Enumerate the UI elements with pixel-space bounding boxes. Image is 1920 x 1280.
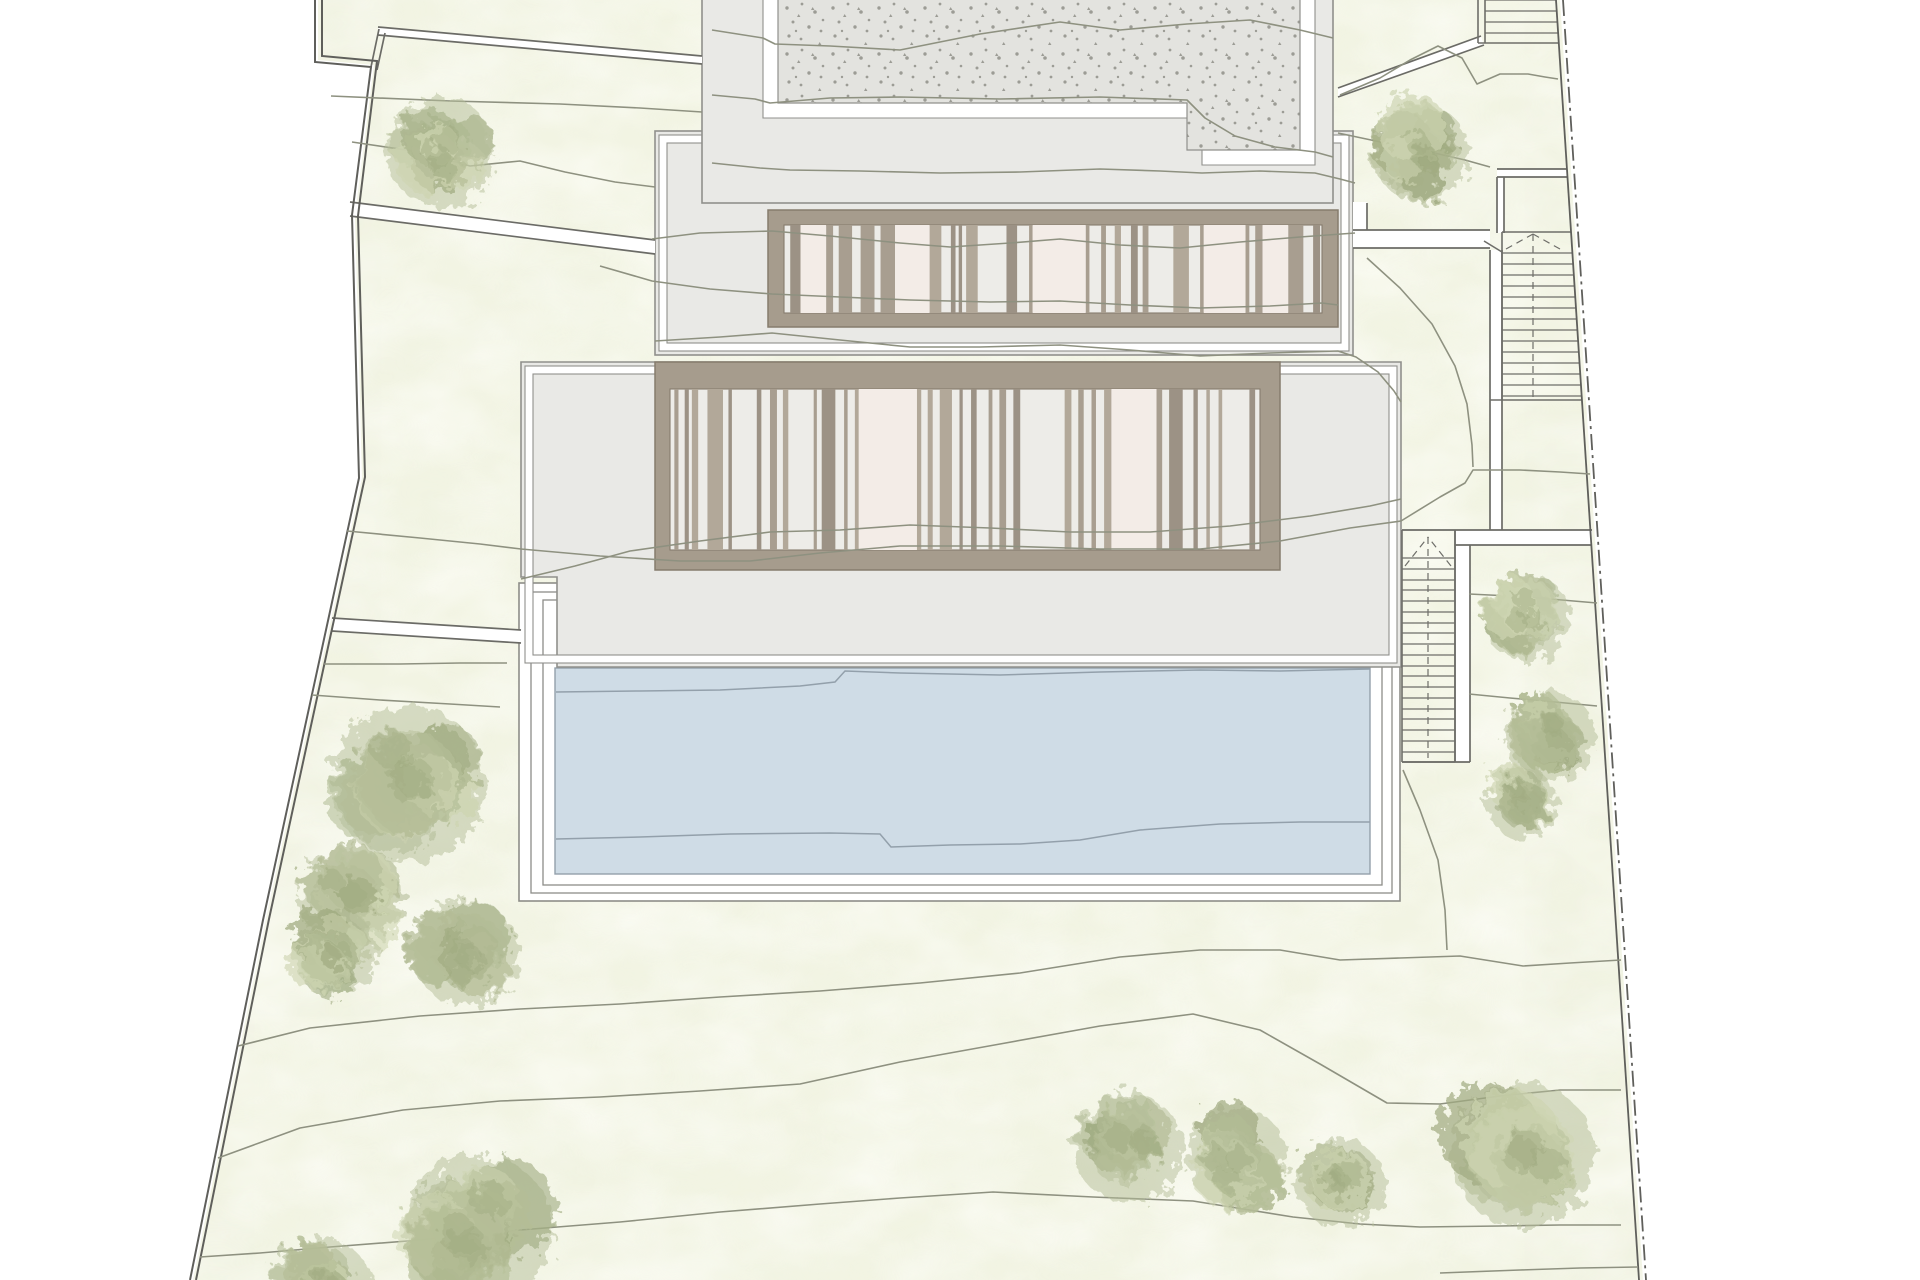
pergola-slat [1101,225,1106,313]
pergola-slat [971,389,977,550]
pergola-slat [1249,389,1255,550]
pergola-slat [1013,389,1020,550]
pergola-slat [1078,389,1083,550]
pergola-slat [1131,225,1138,313]
pergola-slat [707,389,723,550]
retaining-wall-band [1353,202,1367,230]
pergola-slat [1246,225,1250,313]
pergola-slat [814,389,817,550]
retaining-wall-band [1490,250,1502,530]
pergola-slat [1006,225,1017,313]
pergola-slat [1255,225,1262,313]
pergola-slat [1206,389,1209,550]
pergola-slat [674,389,678,550]
pergola-slat [1143,225,1149,313]
pergola-slat [959,389,962,550]
pool-water [555,668,1370,874]
site-plan-drawing [0,0,1920,1280]
pergola-slat [790,225,800,313]
pergola-slat [966,225,978,313]
pergola-slat [1157,389,1163,550]
retaining-wall-band [1497,169,1504,233]
pergola-slat [757,389,762,550]
pergola-slat [822,389,836,550]
pergola-slat [989,389,993,550]
pergola-slat [1173,225,1189,313]
pergola-slat [999,389,1006,550]
site-plan-canvas [0,0,1920,1280]
tree-canopy [1296,1139,1384,1227]
pergola-slat [844,389,848,550]
pergola-slat [855,389,859,550]
pergola-slat [783,389,788,550]
pergola-slat [1065,389,1072,550]
retaining-wall-band [1497,169,1567,177]
pergola-slat [1115,225,1121,313]
pergola-slat [728,389,731,550]
tree-canopy [386,97,495,206]
pergola-slat [685,389,689,550]
pergola-slat [1104,389,1111,550]
pergola-slat [1313,225,1320,313]
pergola-slat [1200,225,1204,313]
pergola-slat [692,389,698,550]
pergola-slat [770,389,777,550]
pergola-slat [959,225,962,313]
pergola-slat [1193,389,1197,550]
pergola-slat [1029,225,1033,313]
pergola-slat [951,225,956,313]
slatted-pergola-lower [655,362,1280,570]
pergola-slat [861,225,875,313]
pergola-slat [1092,389,1096,550]
retaining-wall-band [1353,230,1490,248]
pergola-slat [1169,389,1183,550]
pergola-slat [826,225,833,313]
slatted-pergola-upper [768,210,1338,327]
pergola-slat [1086,225,1090,313]
